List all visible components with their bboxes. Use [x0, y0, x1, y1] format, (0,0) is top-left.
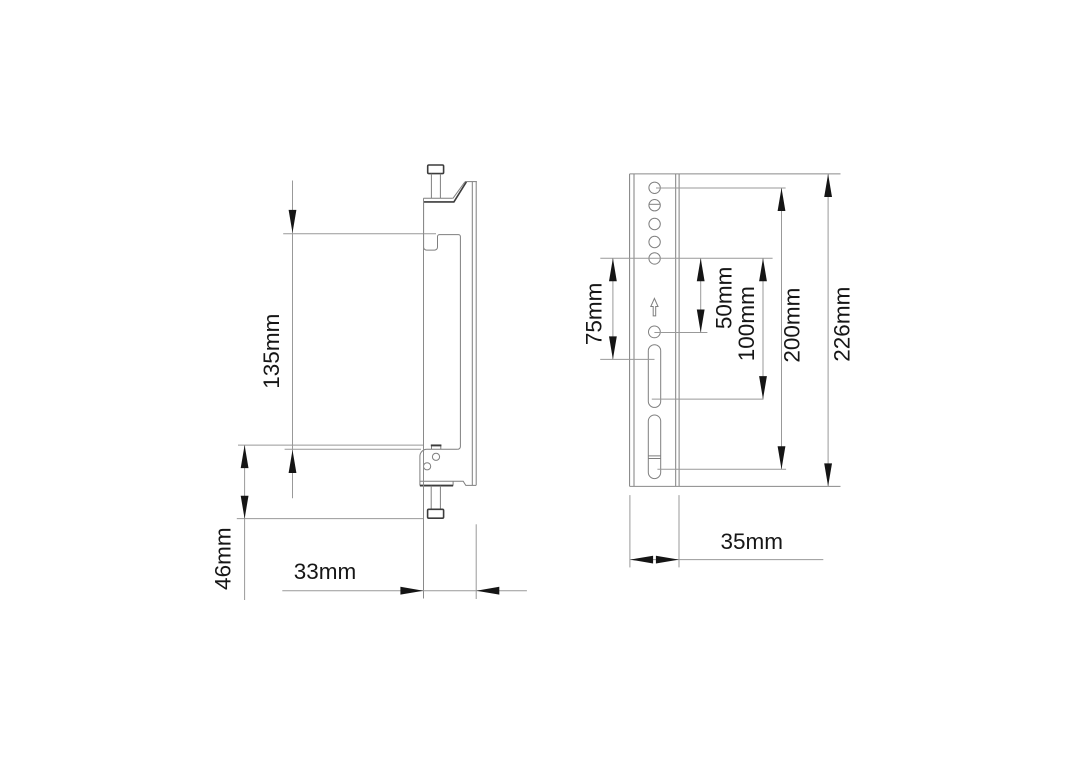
svg-text:200mm: 200mm [780, 288, 805, 363]
svg-text:75mm: 75mm [582, 283, 607, 346]
svg-text:100mm: 100mm [734, 286, 759, 361]
svg-text:35mm: 35mm [721, 529, 784, 554]
svg-text:33mm: 33mm [294, 559, 357, 584]
svg-text:226mm: 226mm [830, 287, 855, 362]
svg-text:46mm: 46mm [211, 527, 236, 590]
svg-text:135mm: 135mm [259, 314, 284, 389]
svg-text:50mm: 50mm [712, 267, 737, 330]
